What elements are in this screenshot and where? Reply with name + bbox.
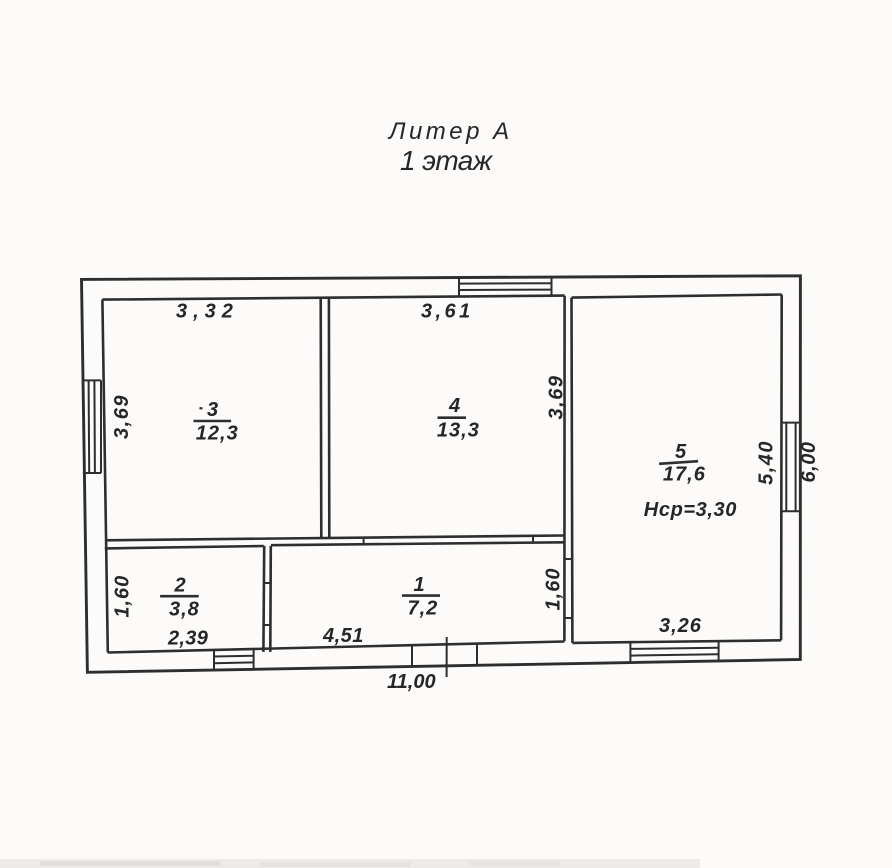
svg-text:13,3: 13,3: [437, 420, 480, 442]
svg-text:5,40: 5,40: [756, 440, 778, 485]
svg-text:2,39: 2,39: [167, 628, 209, 650]
svg-text:6,00: 6,00: [798, 442, 820, 483]
svg-text:3,69: 3,69: [111, 394, 133, 439]
svg-text:1: 1: [413, 574, 424, 596]
svg-text:5: 5: [675, 441, 687, 463]
svg-text:7,2: 7,2: [408, 598, 439, 620]
svg-text:11,00: 11,00: [387, 671, 436, 693]
svg-text:3,32: 3,32: [176, 301, 239, 323]
svg-text:1 этаж: 1 этаж: [400, 145, 494, 176]
svg-text:3,8: 3,8: [169, 599, 200, 621]
svg-text:3: 3: [207, 399, 218, 421]
svg-text:4: 4: [448, 395, 460, 417]
svg-text:4,51: 4,51: [322, 625, 364, 647]
svg-text:3,61: 3,61: [421, 301, 474, 323]
svg-text:12,3: 12,3: [196, 423, 239, 445]
svg-text:3,69: 3,69: [546, 375, 568, 420]
svg-text:1,60: 1,60: [543, 568, 565, 611]
svg-text:1,60: 1,60: [112, 575, 134, 618]
svg-text:3,26: 3,26: [659, 615, 702, 637]
svg-text:Нср=3,30: Нср=3,30: [644, 499, 737, 521]
svg-text:Литер А: Литер А: [387, 118, 513, 145]
svg-text:17,6: 17,6: [663, 463, 706, 485]
svg-text:2: 2: [173, 574, 185, 596]
